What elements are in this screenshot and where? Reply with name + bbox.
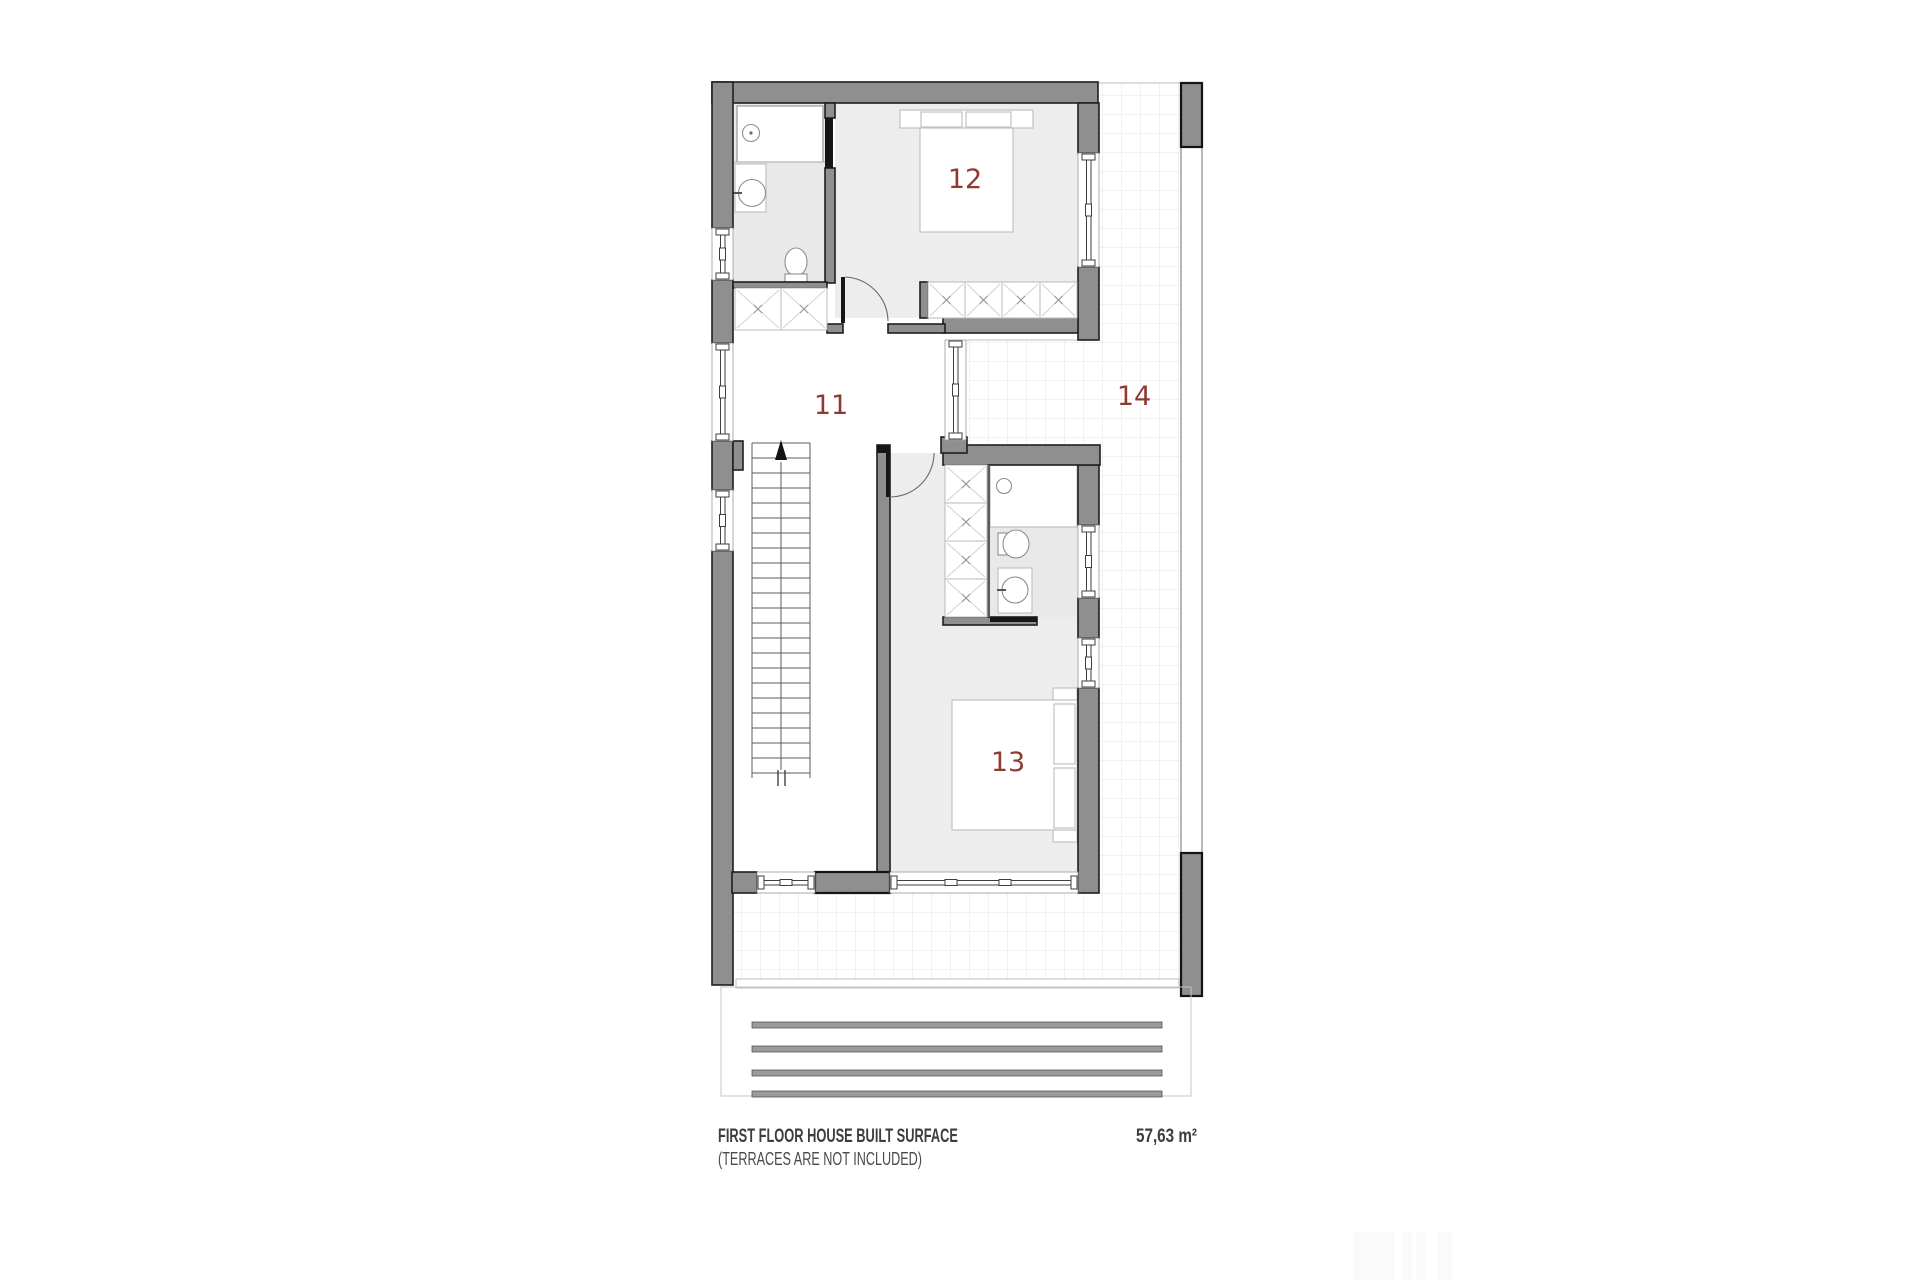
window-symbol bbox=[945, 340, 966, 440]
nightstand bbox=[1053, 688, 1077, 700]
wardrobe-cell bbox=[945, 465, 987, 503]
wardrobe-cell bbox=[781, 288, 827, 330]
railing-pillar-top bbox=[1181, 83, 1202, 147]
window-symbol bbox=[1078, 153, 1099, 267]
wardrobe-cell bbox=[945, 579, 987, 617]
wardrobe-cell bbox=[735, 288, 781, 330]
wardrobe-cell bbox=[965, 282, 1002, 318]
window-symbol bbox=[712, 343, 733, 441]
bathroom2-door-leaf bbox=[990, 617, 1037, 622]
bathroom1-wall bbox=[825, 103, 835, 118]
exterior-wall-bottom bbox=[732, 872, 757, 893]
bedroom13-door-leaf bbox=[886, 450, 890, 497]
bottom-wall-pillar bbox=[815, 872, 890, 893]
window-symbol bbox=[757, 872, 815, 893]
washbasin-icon-2 bbox=[997, 479, 1012, 494]
exterior-wall-top bbox=[712, 82, 1098, 103]
wardrobe-cell bbox=[945, 503, 987, 541]
room-label-14: 14 bbox=[1117, 381, 1151, 412]
wardrobe-cell bbox=[1040, 282, 1077, 318]
faint-watermark bbox=[1353, 1232, 1452, 1280]
pergola bbox=[721, 987, 1191, 1097]
window-symbol bbox=[1078, 525, 1099, 598]
caption-area-value: 57,63 m² bbox=[1136, 1126, 1197, 1147]
toilet-icon bbox=[785, 248, 807, 276]
railing-pillar-bottom bbox=[1181, 853, 1202, 996]
pillow bbox=[966, 112, 1011, 127]
caption: FIRST FLOOR HOUSE BUILT SURFACE (TERRACE… bbox=[718, 1126, 1197, 1169]
pillow bbox=[1054, 768, 1075, 828]
toilet-icon-2 bbox=[1003, 530, 1029, 558]
bedroom12-bottom-wall bbox=[943, 317, 1078, 333]
nightstand bbox=[1053, 830, 1077, 842]
window-symbol bbox=[1078, 638, 1099, 688]
wardrobe-cell bbox=[928, 282, 965, 318]
bathroom1-door-leaf bbox=[825, 118, 833, 168]
floor-plan-drawing: 11 12 13 14 FIRST FLOOR HOUSE BUILT SURF… bbox=[0, 0, 1920, 1280]
pillow bbox=[921, 112, 962, 127]
wardrobe-cell bbox=[1002, 282, 1040, 318]
vanity-counter-2 bbox=[990, 465, 1077, 527]
bedroom12-door-leaf bbox=[841, 277, 845, 323]
washbasin-icon bbox=[739, 180, 766, 207]
wardrobe-cell bbox=[945, 541, 987, 579]
window-symbol bbox=[712, 490, 733, 551]
floor-plan-page: 11 12 13 14 FIRST FLOOR HOUSE BUILT SURF… bbox=[0, 0, 1920, 1280]
exterior-wall-right bbox=[1078, 103, 1099, 153]
room-label-13: 13 bbox=[991, 747, 1025, 778]
stairwell-wall bbox=[877, 445, 890, 872]
stairs bbox=[752, 440, 810, 786]
room-label-11: 11 bbox=[814, 390, 848, 421]
window-symbol bbox=[712, 228, 733, 280]
caption-title: FIRST FLOOR HOUSE BUILT SURFACE bbox=[718, 1126, 958, 1147]
pillow bbox=[1054, 704, 1075, 764]
terrace-railing bbox=[1181, 83, 1202, 996]
exterior-wall-left bbox=[712, 82, 733, 228]
caption-note: (TERRACES ARE NOT INCLUDED) bbox=[718, 1149, 922, 1169]
room-label-12: 12 bbox=[948, 164, 982, 195]
window-symbol bbox=[890, 872, 1078, 893]
